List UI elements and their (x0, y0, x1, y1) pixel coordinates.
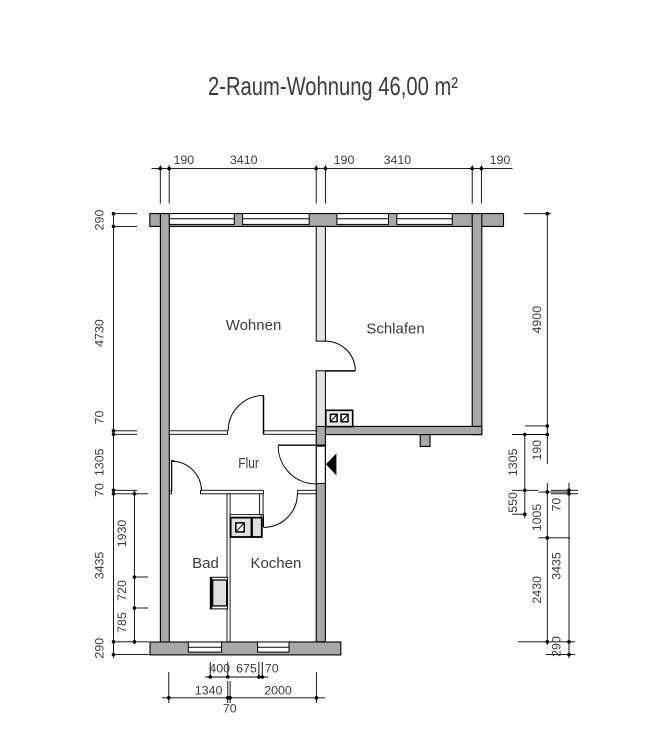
svg-text:720: 720 (115, 580, 129, 601)
svg-text:3435: 3435 (550, 552, 564, 580)
svg-text:Bad: Bad (192, 555, 219, 572)
svg-text:1340: 1340 (195, 684, 223, 698)
svg-text:1305: 1305 (93, 448, 107, 476)
svg-text:550: 550 (506, 492, 520, 513)
svg-text:400: 400 (209, 662, 230, 676)
svg-text:4900: 4900 (530, 306, 544, 334)
svg-text:Wohnen: Wohnen (226, 317, 282, 334)
svg-text:290: 290 (93, 638, 107, 659)
svg-text:70: 70 (265, 662, 279, 676)
svg-text:Flur: Flur (238, 455, 258, 472)
svg-text:190: 190 (490, 153, 511, 167)
svg-text:Kochen: Kochen (250, 555, 301, 572)
svg-text:1005: 1005 (530, 504, 544, 532)
svg-text:2430: 2430 (530, 576, 544, 604)
svg-text:70: 70 (93, 411, 107, 425)
svg-text:2-Raum-Wohnung 46,00 m²: 2-Raum-Wohnung 46,00 m² (208, 71, 458, 101)
svg-text:4730: 4730 (93, 319, 107, 347)
svg-text:785: 785 (115, 612, 129, 633)
svg-text:675: 675 (236, 662, 257, 676)
svg-text:70: 70 (550, 498, 564, 512)
svg-text:190: 190 (530, 440, 544, 461)
svg-text:190: 190 (334, 153, 355, 167)
svg-text:3410: 3410 (230, 153, 258, 167)
svg-text:70: 70 (223, 702, 237, 716)
svg-text:70: 70 (93, 483, 107, 497)
svg-text:2000: 2000 (264, 684, 292, 698)
svg-text:3410: 3410 (384, 153, 412, 167)
svg-text:290: 290 (550, 636, 564, 657)
svg-text:1305: 1305 (506, 448, 520, 476)
svg-text:290: 290 (93, 210, 107, 231)
svg-text:3435: 3435 (93, 552, 107, 580)
svg-text:1930: 1930 (115, 520, 129, 548)
svg-text:Schlafen: Schlafen (366, 321, 424, 338)
svg-text:190: 190 (173, 153, 194, 167)
